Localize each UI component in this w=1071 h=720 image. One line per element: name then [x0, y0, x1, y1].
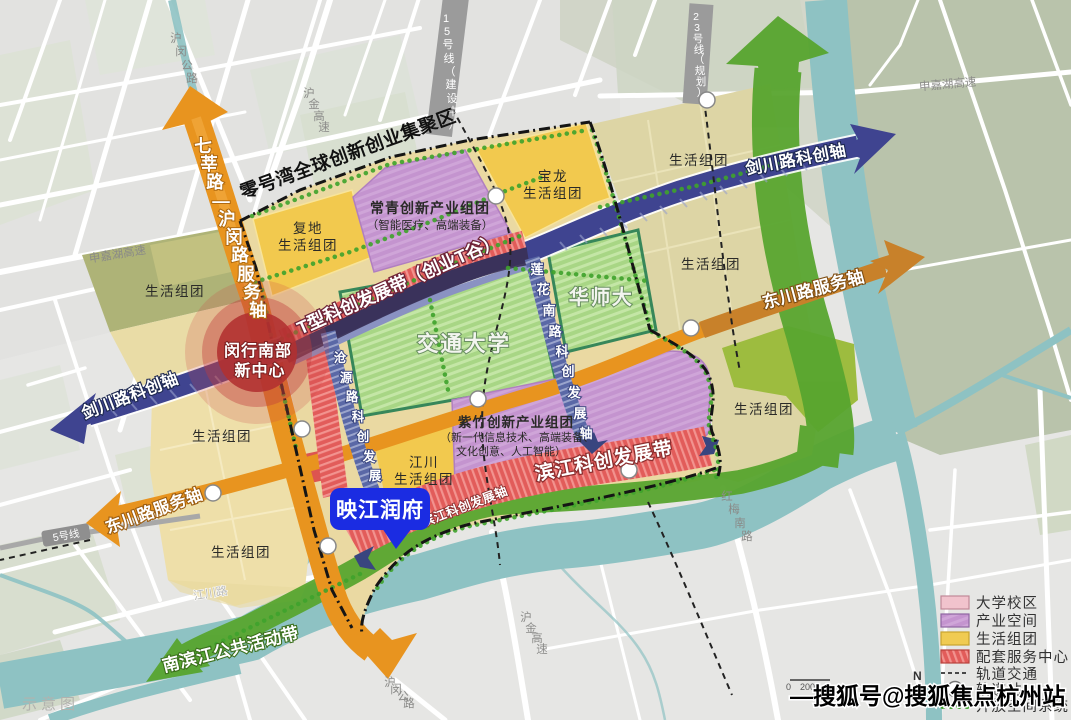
svg-text:生活组团: 生活组团 — [681, 257, 741, 272]
svg-text:新中心: 新中心 — [234, 361, 285, 380]
svg-text:沪: 沪 — [170, 31, 182, 45]
svg-text:生活组团: 生活组团 — [669, 153, 729, 168]
svg-text:科: 科 — [352, 409, 365, 424]
svg-text:示意图: 示意图 — [22, 695, 79, 713]
svg-text:生活组团: 生活组团 — [523, 186, 583, 201]
svg-text:路: 路 — [186, 71, 198, 85]
svg-text:沪: 沪 — [218, 209, 236, 229]
svg-text:（智能医疗、高端装备）: （智能医疗、高端装备） — [367, 218, 494, 232]
svg-text:生活组团: 生活组团 — [278, 238, 338, 253]
svg-text:路: 路 — [346, 389, 359, 404]
svg-text:红: 红 — [721, 490, 733, 503]
svg-text:映江润府: 映江润府 — [336, 498, 424, 522]
svg-text:文化创意、人工智能）: 文化创意、人工智能） — [456, 444, 566, 458]
svg-text:高: 高 — [313, 109, 325, 123]
svg-text:闵: 闵 — [175, 44, 187, 58]
svg-text:生活组团: 生活组团 — [394, 472, 454, 487]
svg-text:（: （ — [445, 65, 456, 78]
svg-text:配套服务中心: 配套服务中心 — [976, 649, 1069, 666]
svg-text:建: 建 — [446, 77, 457, 91]
svg-text:路: 路 — [231, 245, 249, 265]
svg-text:路: 路 — [741, 529, 753, 543]
svg-text:路: 路 — [403, 696, 415, 710]
svg-text:轴: 轴 — [249, 300, 267, 320]
svg-text:南: 南 — [542, 303, 555, 318]
svg-text:南: 南 — [734, 516, 746, 530]
svg-text:梅: 梅 — [728, 502, 740, 516]
svg-text:紫竹创新产业组团: 紫竹创新产业组团 — [458, 414, 574, 430]
svg-text:服: 服 — [237, 264, 255, 284]
svg-text:路: 路 — [206, 172, 224, 192]
svg-text:生活组团: 生活组团 — [145, 284, 205, 299]
svg-text:发: 发 — [362, 449, 376, 464]
svg-text:（新一代信息技术、高端装备、: （新一代信息技术、高端装备、 — [440, 430, 594, 444]
svg-text:华师大: 华师大 — [569, 285, 634, 309]
svg-text:创: 创 — [356, 429, 370, 444]
svg-text:花: 花 — [536, 282, 549, 297]
svg-text:速: 速 — [318, 121, 330, 134]
svg-text:—搜狐号@搜狐焦点杭州站: —搜狐号@搜狐焦点杭州站 — [790, 683, 1065, 709]
svg-text:号: 号 — [443, 38, 454, 51]
svg-text:源: 源 — [340, 370, 353, 385]
svg-text:5: 5 — [444, 26, 450, 38]
svg-text:金: 金 — [308, 97, 320, 111]
svg-text:江川: 江川 — [409, 455, 439, 470]
svg-text:高: 高 — [531, 631, 543, 645]
svg-text:展: 展 — [369, 469, 382, 483]
svg-text:N: N — [913, 669, 922, 683]
svg-text:生活组团: 生活组团 — [734, 402, 794, 417]
svg-text:线: 线 — [444, 51, 455, 65]
svg-text:交通大学: 交通大学 — [417, 331, 511, 356]
svg-text:大学校区: 大学校区 — [976, 595, 1038, 612]
svg-text:沪: 沪 — [303, 86, 315, 100]
svg-text:公: 公 — [181, 59, 193, 72]
svg-text:七: 七 — [194, 136, 212, 156]
svg-text:创: 创 — [560, 364, 574, 379]
svg-text:生活组团: 生活组团 — [192, 429, 252, 444]
svg-text:1: 1 — [443, 13, 449, 25]
svg-text:科: 科 — [555, 344, 568, 359]
svg-text:常青创新产业组团: 常青创新产业组团 — [370, 200, 490, 216]
svg-text:发: 发 — [566, 385, 581, 400]
svg-text:）: ） — [697, 87, 708, 99]
svg-text:闵: 闵 — [225, 227, 243, 247]
svg-text:—: — — [212, 191, 230, 211]
svg-text:莲: 莲 — [530, 262, 543, 277]
svg-text:路: 路 — [548, 324, 562, 339]
svg-text:闵行南部: 闵行南部 — [224, 341, 292, 360]
svg-text:生活组团: 生活组团 — [976, 631, 1038, 648]
svg-text:复地: 复地 — [293, 220, 323, 236]
svg-text:务: 务 — [243, 282, 261, 302]
svg-text:沧: 沧 — [334, 350, 347, 365]
svg-text:莘: 莘 — [200, 154, 218, 174]
svg-text:速: 速 — [536, 643, 548, 656]
svg-text:设: 设 — [447, 92, 458, 105]
svg-text:生活组团: 生活组团 — [211, 545, 271, 560]
svg-text:轨道交通: 轨道交通 — [976, 665, 1038, 683]
svg-text:宝龙: 宝龙 — [538, 169, 568, 184]
svg-text:沪: 沪 — [520, 610, 532, 624]
svg-text:展: 展 — [573, 406, 587, 421]
svg-text:产业空间: 产业空间 — [976, 613, 1038, 630]
